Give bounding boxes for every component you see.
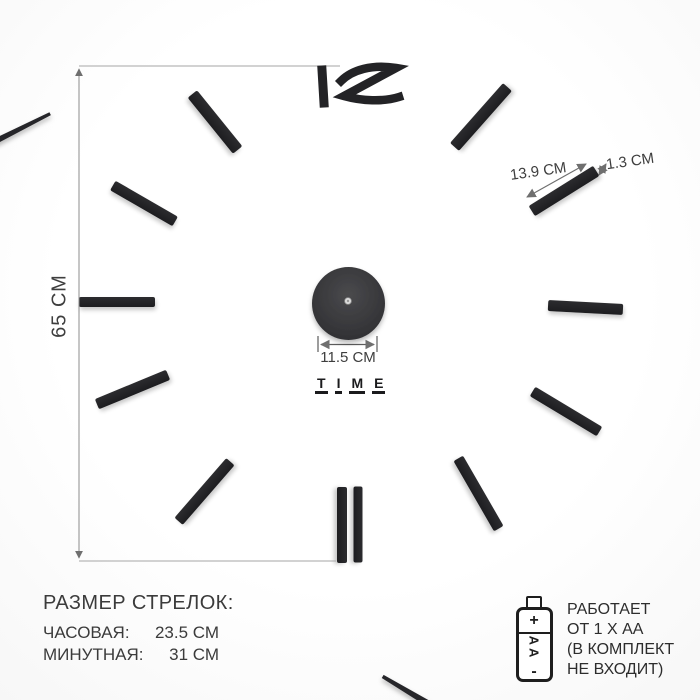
brand-letter-t: T — [315, 377, 328, 394]
battery-minus-sign: - — [531, 665, 536, 679]
spec-row-minute: МИНУТНАЯ: 31 СМ — [43, 644, 219, 666]
battery-note-line-1: РАБОТАЕТ — [567, 600, 674, 620]
brand-letter-m: M — [349, 377, 365, 394]
brand-letter-e: E — [372, 377, 385, 394]
battery-body: + АА - — [516, 607, 553, 682]
brand-logo: T I M E — [315, 377, 385, 394]
numeral-12 — [322, 67, 399, 103]
battery-note-line-3: (В КОМПЛЕКТ — [567, 640, 674, 660]
spec-label-minute: МИНУТНАЯ: — [43, 644, 143, 666]
battery-plus-sign: + — [519, 610, 550, 632]
battery-lower: АА - — [519, 634, 550, 679]
minute-hand — [0, 107, 53, 217]
battery-type-label: АА — [527, 636, 542, 661]
battery-note-text: РАБОТАЕТ ОТ 1 Х АА (В КОМПЛЕКТ НЕ ВХОДИТ… — [567, 596, 674, 682]
dimension-hub-width-label: 11.5 СМ — [317, 349, 379, 366]
hand-size-specs: РАЗМЕР СТРЕЛОК: ЧАСОВАЯ: 23.5 СМ МИНУТНА… — [43, 592, 219, 666]
spec-value-hour: 23.5 СМ — [155, 622, 219, 644]
brand-letter-i: I — [335, 377, 343, 394]
product-infographic: 65 СМ 13.9 СМ 1.3 СМ 11.5 СМ T I M E РАЗ… — [0, 0, 700, 700]
height-dimension-lines — [79, 66, 340, 561]
aa-battery-icon: + АА - — [514, 596, 554, 682]
battery-note-line-2: ОТ 1 Х АА — [567, 620, 674, 640]
battery-note-line-4: НЕ ВХОДИТ) — [567, 660, 674, 680]
dimension-height-label: 65 СМ — [49, 274, 72, 338]
spec-row-hour: ЧАСОВАЯ: 23.5 СМ — [43, 622, 219, 644]
specs-title: РАЗМЕР СТРЕЛОК: — [43, 592, 219, 615]
spec-value-minute: 31 СМ — [169, 644, 219, 666]
tick-width-arrow — [599, 164, 606, 175]
center-pin-dot — [347, 300, 349, 302]
spec-label-hour: ЧАСОВАЯ: — [43, 622, 130, 644]
battery-block: + АА - РАБОТАЕТ ОТ 1 Х АА (В КОМПЛЕКТ НЕ… — [514, 596, 674, 682]
